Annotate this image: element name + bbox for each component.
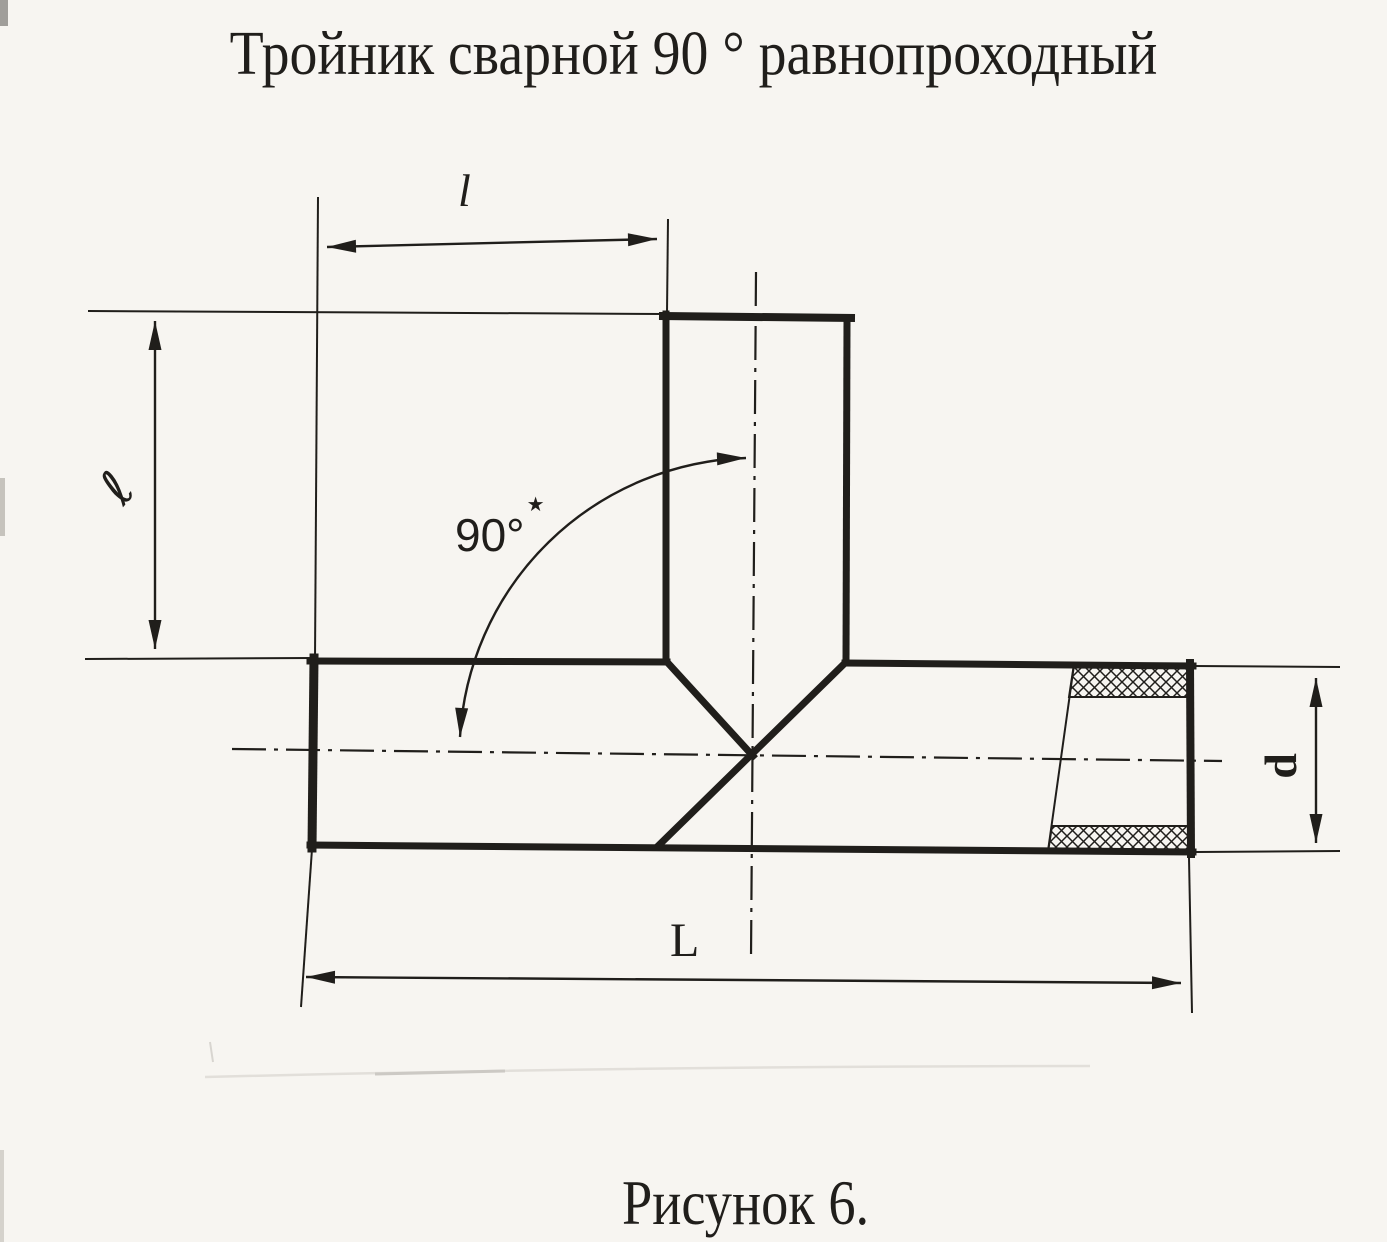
centerlines bbox=[232, 272, 1222, 958]
angle-footnote-star: ★ bbox=[527, 494, 545, 516]
scan-edge-mark bbox=[0, 1150, 4, 1242]
figure-caption: Рисунок 6. bbox=[622, 1171, 869, 1235]
dim-label-diameter: d bbox=[1255, 749, 1307, 783]
ext-line-d-top bbox=[1194, 666, 1340, 667]
angle-value: 90° bbox=[455, 509, 525, 561]
angle-label: 90°★ bbox=[455, 512, 543, 558]
ext-line-d-bottom bbox=[1196, 851, 1340, 852]
ext-line-l-left bbox=[315, 197, 318, 659]
scan-edge-mark bbox=[0, 0, 8, 26]
pipe-right-end-wall bbox=[1190, 663, 1191, 854]
ext-line-el-bottom bbox=[85, 658, 313, 659]
branch-pipe-outline bbox=[663, 314, 851, 662]
vertical-centerline bbox=[751, 272, 756, 958]
pipe-top-edge-right bbox=[845, 663, 1193, 666]
pipe-top-edge-left bbox=[310, 661, 667, 662]
scanned-page: Тройник сварной 90 ° равнопроходный bbox=[0, 0, 1387, 1242]
scan-artifacts bbox=[0, 0, 1090, 1242]
scan-scratch bbox=[205, 1066, 1090, 1077]
dimension-arrows bbox=[155, 239, 1316, 983]
ext-line-L-right bbox=[1189, 858, 1192, 1013]
tee-diagram bbox=[0, 0, 1387, 1242]
weld-diagonal-short bbox=[667, 662, 753, 756]
ext-line-L-left bbox=[301, 849, 312, 1007]
pipe-left-end-wall bbox=[312, 658, 314, 848]
dim-arrow-overall-length bbox=[306, 977, 1181, 983]
scan-scratch bbox=[375, 1071, 505, 1074]
branch-right-wall bbox=[846, 321, 847, 662]
ext-line-el-top bbox=[88, 311, 665, 314]
scan-scratch bbox=[210, 1042, 213, 1062]
horizontal-centerline bbox=[232, 749, 1222, 761]
dim-arrow-branch-length bbox=[327, 239, 657, 247]
scan-edge-mark bbox=[0, 478, 5, 536]
dim-label-branch-length: l bbox=[458, 168, 471, 214]
dim-label-overall-length: L bbox=[670, 917, 699, 965]
ext-line-l-right bbox=[667, 219, 668, 313]
branch-top-edge bbox=[663, 316, 851, 318]
pipe-wall-section-hatch bbox=[1048, 664, 1190, 852]
angle-arc-arrow bbox=[460, 458, 746, 737]
